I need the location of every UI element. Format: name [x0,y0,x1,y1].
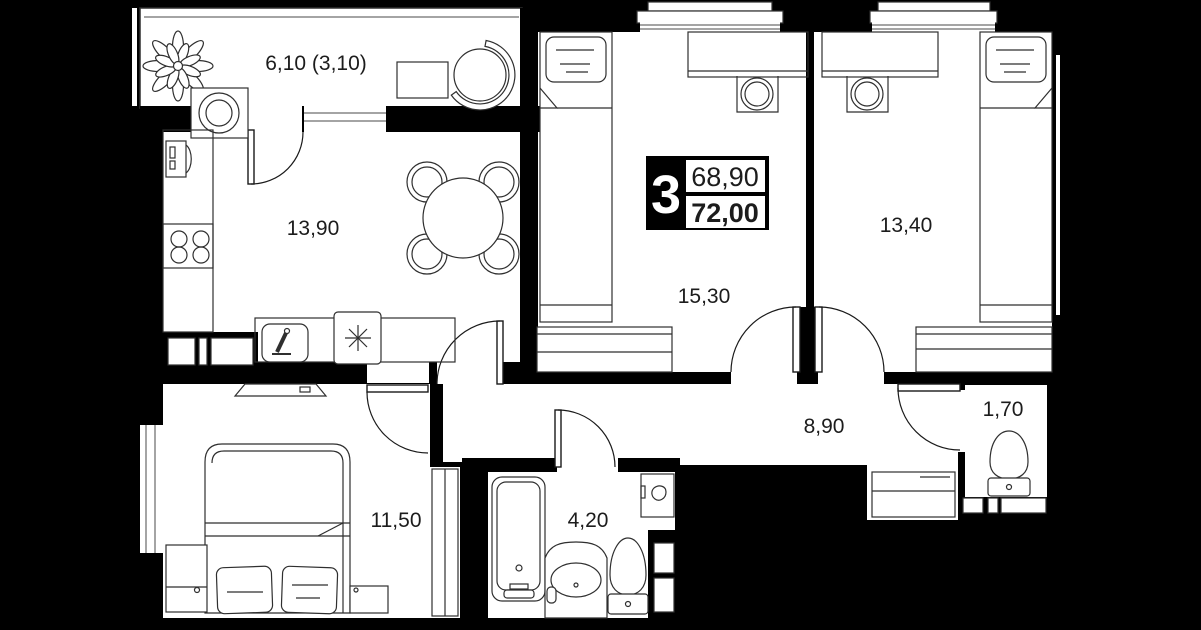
bedroom2-window [872,22,995,32]
bedroom1-door-gap [731,372,797,384]
corridor-floor [443,384,540,462]
washing-machine-icon [641,474,674,517]
room-label-hallway: 8,90 [804,415,845,438]
room-label-balcony: 6,10 (3,10) [265,52,367,75]
bathroom-door-gap [557,458,618,472]
wc-door-gap [958,390,965,452]
bathtub-icon [492,477,545,601]
room-label-wc: 1,70 [983,398,1024,421]
badge-living-area: 68,90 [691,162,759,192]
room-label-bedroom3: 11,50 [371,509,422,532]
bedroom3-door-gap [367,362,429,383]
bedroom2-bed-icon [980,32,1052,322]
room-label-kitchen: 13,90 [287,217,340,240]
bedroom1-dresser-icon [537,327,672,372]
wc-toilet-icon [988,431,1030,496]
bedroom1-window [640,22,780,32]
room-label-bedroom1: 15,30 [678,285,731,308]
floor-plan-screenshot: 6,10 (3,10) 13,90 15,30 13,40 11,50 4,20… [0,0,1201,630]
kitchen-sink-icon [262,324,308,362]
kitchen-door-gap [437,362,500,384]
double-bed-icon [205,444,350,614]
bedroom2-door-gap [818,372,884,384]
window-bay-bedroom1 [637,2,783,32]
hallway-wardrobe-icon [872,472,955,517]
window-bay-bedroom2 [870,2,997,32]
room-label-bedroom2: 13,40 [880,214,933,237]
kitchen-window [304,106,386,132]
room-hallway-floor [540,384,958,465]
room-label-bathroom: 4,20 [568,509,609,532]
dining-table-icon [407,162,519,274]
balcony-table-icon [397,62,448,98]
dishwasher-icon [334,312,381,364]
badge-rooms-count: 3 [651,165,681,225]
bedroom2-side-window [1056,55,1060,315]
bathroom-sink-icon [545,542,607,618]
balcony-door-gap [248,106,302,132]
bedroom1-bed-icon [540,32,612,322]
nightstand-right-icon [350,586,388,613]
bedroom3-window [140,425,163,553]
apartment-badge: 3 68,90 72,00 [646,156,769,230]
nightstand-left-icon [166,545,207,612]
tv-icon [235,384,326,396]
floor-plan: 6,10 (3,10) 13,90 15,30 13,40 11,50 4,20… [0,0,1201,630]
balcony-left-glass [132,8,137,106]
badge-total-area: 72,00 [691,198,759,228]
bedroom2-dresser-icon [916,327,1052,372]
